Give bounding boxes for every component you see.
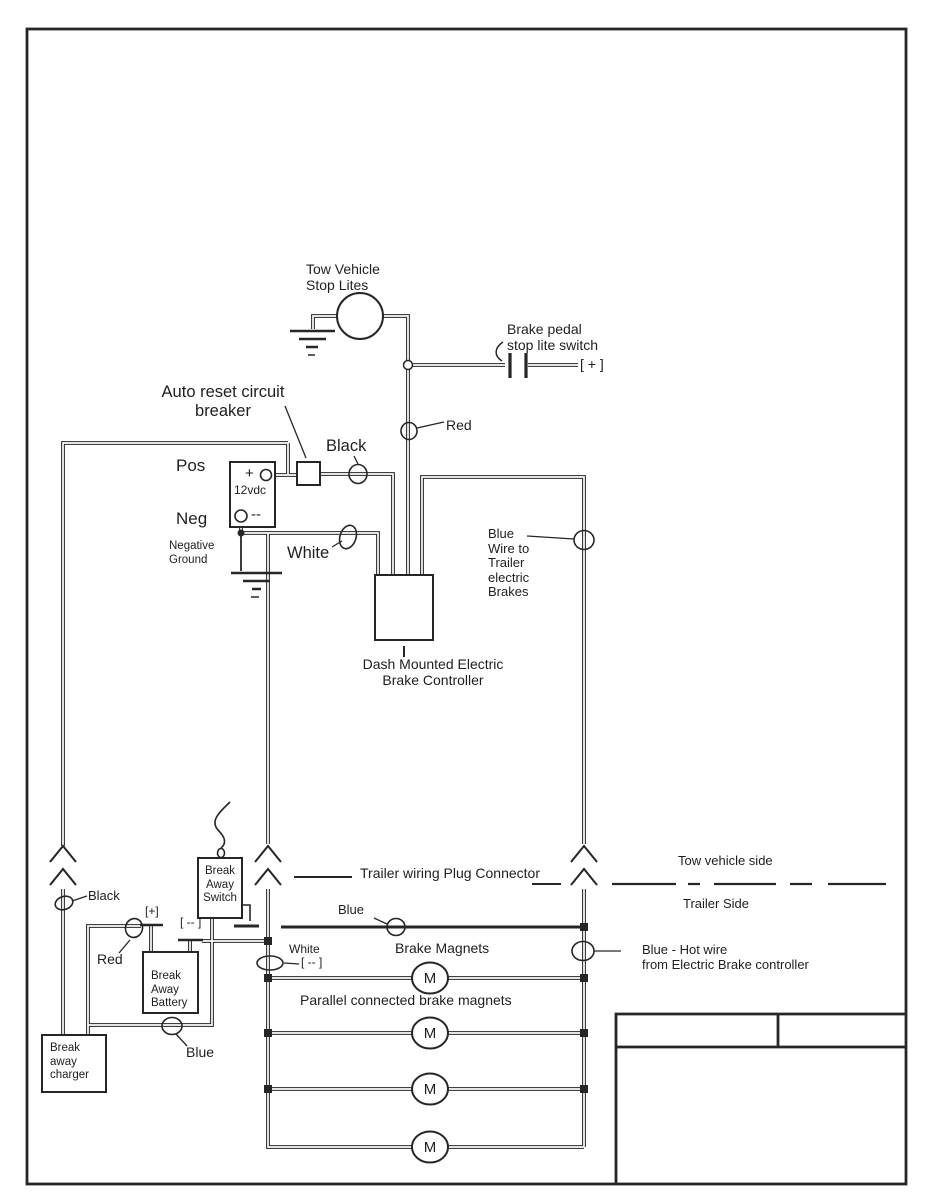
leader-lines (72, 406, 621, 1046)
blue-hot-note-label: Blue - Hot wire from Electric Brake cont… (642, 943, 809, 972)
switch-tap-node (404, 361, 413, 370)
magnet-m-label: M (424, 1081, 437, 1098)
battery-minus-label: -- (251, 507, 261, 522)
brake-pedal-switch-label: Brake pedal stop lite switch (507, 322, 598, 353)
plus-terminal-label: [ + ] (580, 357, 604, 373)
battery-plus-label: + (245, 466, 254, 481)
neg-label: Neg (176, 509, 207, 529)
brake-controller (375, 575, 433, 657)
white-wire-marker-icon (257, 956, 283, 970)
tow-stop-lites-label: Tow Vehicle Stop Lites (306, 262, 380, 293)
breakaway-red-label: Red (97, 952, 123, 968)
magnet-m-label: M (424, 1025, 437, 1042)
title-block (616, 1014, 906, 1184)
red-wire-marker-icon (124, 917, 145, 939)
breakaway-pull-cable-icon (215, 802, 230, 858)
controller-label: Dash Mounted Electric Brake Controller (345, 657, 521, 688)
wire-color-markers (53, 423, 594, 1035)
red-wire-label: Red (446, 418, 472, 434)
ground-icon (290, 331, 335, 355)
breakaway-switch-label: Break Away Switch (198, 865, 242, 906)
blue-wire-note-label: Blue Wire to Trailer electric Brakes (488, 527, 529, 600)
trailer-blue-label: Blue (338, 903, 364, 918)
switch-output-wire (242, 905, 250, 921)
plug-connector-label: Trailer wiring Plug Connector (360, 866, 540, 882)
battery-voltage-label: 12vdc (234, 484, 266, 497)
negative-ground-icon (231, 573, 282, 597)
wiring-diagram: M M M M (0, 0, 936, 1200)
wiring-diagram-page: M M M M (0, 0, 936, 1200)
breakaway-charger-label: Break away charger (50, 1042, 89, 1083)
white-wire-marker-icon (337, 523, 360, 551)
circuit-breaker-icon (297, 462, 320, 485)
black-wire-label: Black (326, 437, 366, 456)
breakaway-battery-label: Break Away Battery (151, 970, 187, 1011)
breakaway-plus-label: [+] (145, 905, 159, 918)
battery-positive-terminal-icon (261, 470, 272, 481)
tow-side-label: Tow vehicle side (678, 854, 773, 869)
pos-label: Pos (176, 456, 205, 476)
white-wire-label: White (287, 544, 329, 563)
magnet-m-label: M (424, 1139, 437, 1156)
brake-magnets-heading: Brake Magnets (395, 941, 489, 957)
trailer-white-minus-label: [ -- ] (301, 956, 322, 969)
magnet-m-label: M (424, 970, 437, 987)
breakaway-black-label: Black (88, 889, 120, 904)
parallel-note-label: Parallel connected brake magnets (300, 993, 512, 1009)
auto-reset-label: Auto reset circuit breaker (148, 383, 298, 421)
breakaway-blue-label: Blue (186, 1045, 214, 1061)
battery-negative-terminal-icon (235, 510, 247, 522)
trailer-side-label: Trailer Side (683, 897, 749, 912)
wire-runs (63, 316, 584, 1147)
stop-light-icon (337, 293, 383, 339)
negative-ground-label: Negative Ground (169, 540, 214, 567)
breakaway-minus-label: [ -- ] (180, 916, 201, 929)
